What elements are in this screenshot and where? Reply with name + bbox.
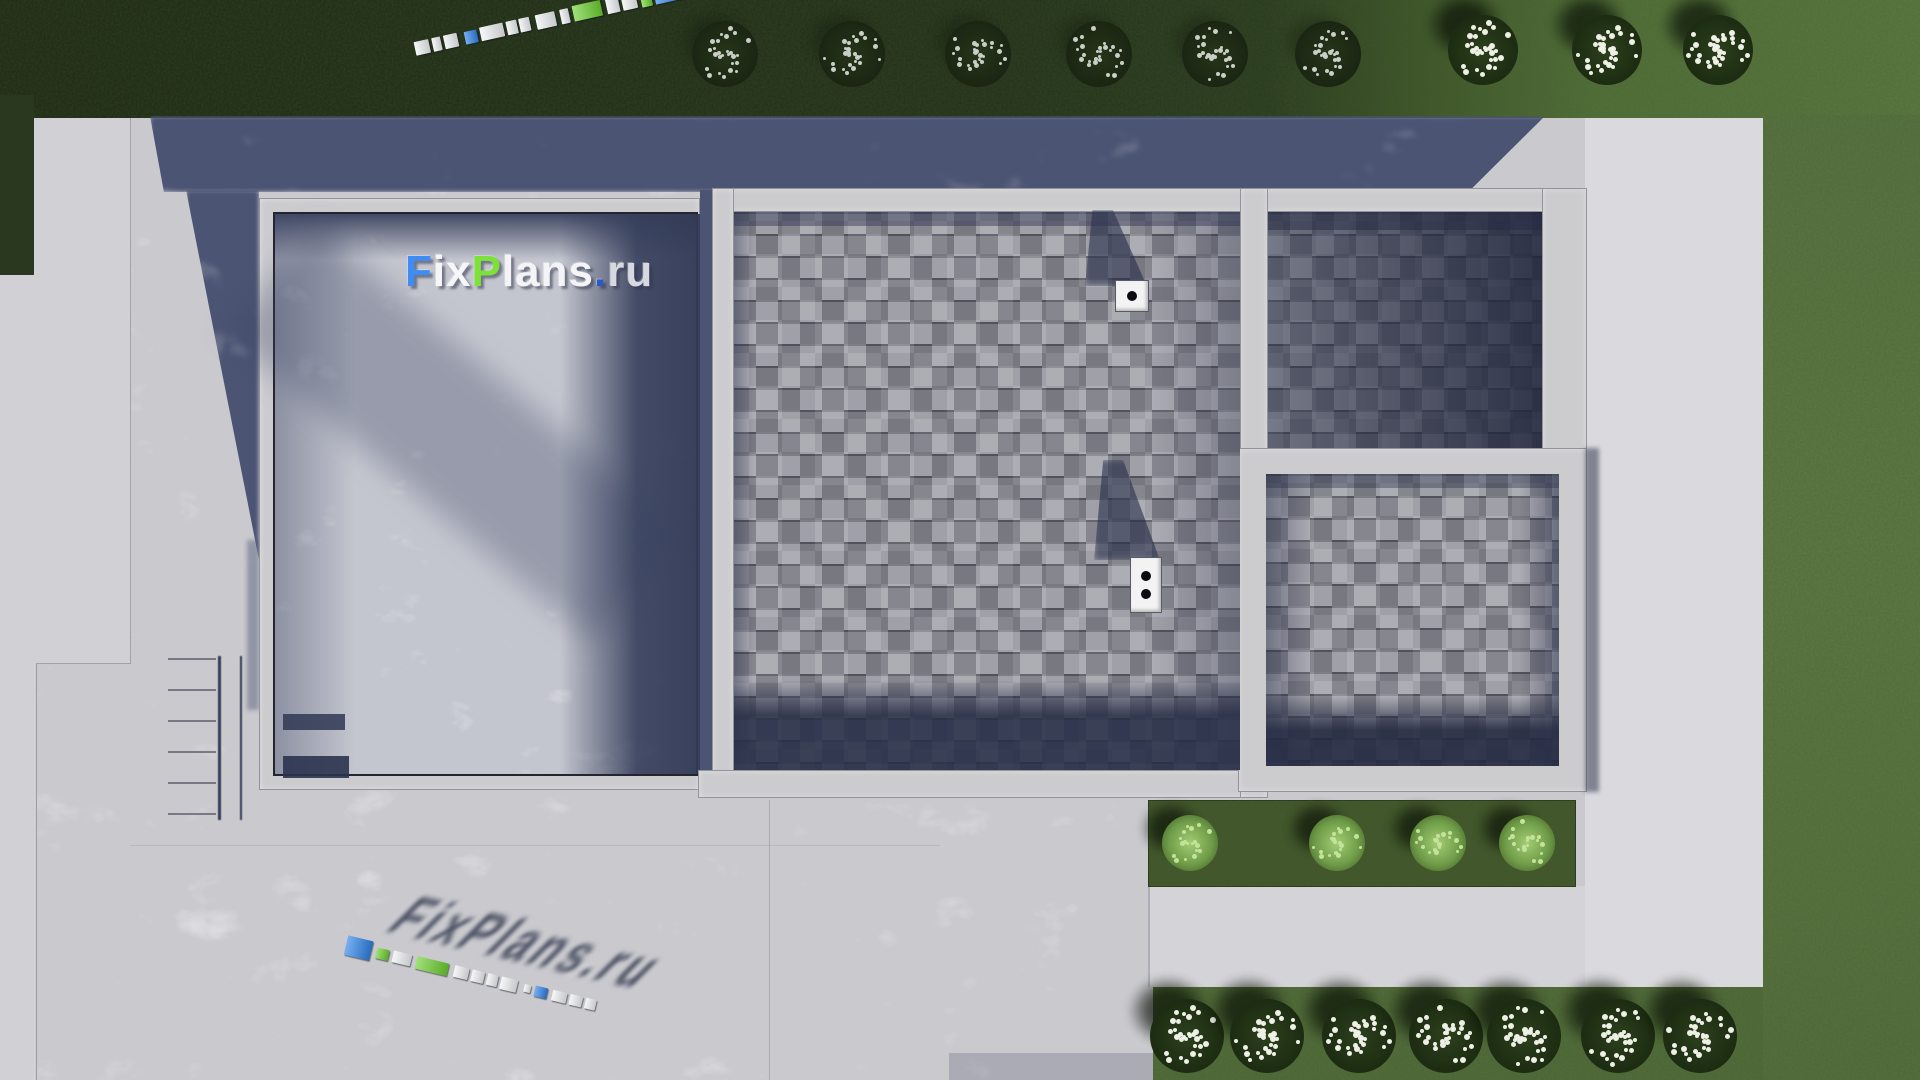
foliage-speck — [1256, 1019, 1262, 1025]
logo-letter-top — [391, 950, 412, 966]
foliage-speck — [1451, 1023, 1455, 1027]
foliage-speck — [1337, 827, 1340, 830]
gap-shadow-right-edge — [1585, 448, 1599, 792]
foliage-speck — [1636, 1016, 1640, 1020]
foliage-speck — [1197, 823, 1201, 827]
foliage-speck — [1332, 1027, 1338, 1033]
foliage-speck — [1712, 46, 1718, 52]
foliage-speck — [831, 62, 835, 66]
foliage-speck — [1706, 1047, 1711, 1052]
foliage-speck — [1333, 840, 1337, 844]
foliage-speck — [1248, 1058, 1252, 1062]
shrub-foliage — [1066, 21, 1132, 87]
foliage-speck — [1457, 1031, 1461, 1035]
shrub-leaf — [1309, 815, 1365, 871]
foliage-speck — [1205, 56, 1208, 59]
foliage-speck — [1325, 69, 1329, 73]
foliage-speck — [1719, 1023, 1723, 1027]
logo-letter-top — [518, 17, 532, 33]
foliage-speck — [736, 54, 739, 57]
foliage-speck — [1111, 45, 1115, 49]
foliage-speck — [1693, 42, 1699, 48]
foliage-speck — [1179, 1056, 1183, 1060]
foliage-speck — [968, 67, 972, 71]
foliage-speck — [1186, 1014, 1192, 1020]
foliage-speck — [1454, 838, 1459, 843]
shrub-foliage — [1295, 21, 1361, 87]
foliage-speck — [1633, 1038, 1637, 1042]
shrub-flower-shade — [1295, 21, 1361, 87]
foliage-speck — [1076, 48, 1079, 51]
foliage-speck — [1526, 844, 1529, 847]
foliage-speck — [1695, 58, 1701, 64]
foliage-speck — [1618, 31, 1623, 36]
logo-letter-top — [499, 976, 519, 993]
shrub-flower-sun — [1230, 999, 1304, 1073]
logo-letter-top — [533, 985, 548, 999]
logo-letter-top — [479, 22, 505, 41]
entrance-stairs — [168, 658, 216, 820]
foliage-speck — [1696, 1018, 1701, 1023]
foliage-speck — [1170, 1018, 1176, 1024]
foliage-speck — [1329, 71, 1334, 76]
foliage-speck — [1701, 1033, 1705, 1037]
shrub-leaf — [1410, 815, 1466, 871]
foliage-speck — [1119, 49, 1122, 52]
foliage-speck — [1252, 1027, 1257, 1032]
foliage-speck — [1313, 50, 1318, 55]
foliage-speck — [1614, 51, 1618, 55]
foliage-speck — [1227, 56, 1232, 61]
foliage-speck — [1275, 1010, 1281, 1016]
foliage-speck — [1705, 1039, 1711, 1045]
apron-seam-vertical — [769, 800, 770, 1080]
logo-letter-top — [568, 993, 583, 1007]
foliage-speck — [1708, 42, 1713, 47]
foliage-speck — [1362, 1019, 1366, 1023]
foliage-speck — [1213, 29, 1218, 34]
foliage-speck — [1613, 1035, 1619, 1041]
foliage-speck — [1290, 1024, 1296, 1030]
foliage-speck — [1088, 60, 1091, 63]
foliage-speck — [1319, 850, 1323, 854]
foliage-speck — [733, 31, 737, 35]
foliage-speck — [1585, 58, 1590, 63]
foliage-speck — [1166, 1057, 1172, 1063]
foliage-speck — [718, 55, 722, 59]
foliage-speck — [1498, 55, 1504, 61]
foliage-speck — [1291, 1018, 1295, 1022]
foliage-speck — [1704, 1012, 1708, 1016]
shrub-flower-sun — [1487, 999, 1561, 1073]
logo-letter-top — [523, 984, 532, 993]
logo-letter-top — [413, 39, 431, 56]
foliage-speck — [1531, 1057, 1537, 1063]
foliage-speck — [1359, 846, 1362, 849]
building-shadow-left — [186, 190, 259, 560]
logo-letter-top — [639, 0, 653, 7]
foliage-speck — [1512, 842, 1516, 846]
foliage-speck — [1505, 32, 1511, 38]
foliage-speck — [1589, 1049, 1594, 1054]
foliage-speck — [1349, 1027, 1354, 1032]
foliage-speck — [1338, 65, 1342, 69]
foliage-speck — [1337, 1039, 1342, 1044]
foliage-speck — [1686, 53, 1691, 58]
foliage-speck — [1328, 854, 1331, 857]
logo-letter-top — [584, 997, 597, 1010]
logo-letter-top — [534, 11, 557, 30]
foliage-speck — [1522, 1027, 1528, 1033]
glass-shade-left — [275, 214, 355, 774]
foliage-speck — [1596, 34, 1602, 40]
slab-edge-band — [949, 1053, 1176, 1080]
foliage-speck — [1536, 839, 1539, 842]
foliage-speck — [1536, 1049, 1540, 1053]
foliage-speck — [1079, 57, 1084, 62]
foliage-speck — [1339, 848, 1342, 851]
foliage-speck — [1460, 1057, 1466, 1063]
foliage-speck — [1615, 25, 1621, 31]
foliage-speck — [1690, 47, 1694, 51]
foliage-speck — [1443, 1031, 1447, 1035]
foliage-speck — [1540, 1010, 1544, 1014]
foliage-speck — [1164, 1051, 1169, 1056]
shrub-foliage — [1410, 815, 1466, 871]
foliage-speck — [1441, 832, 1446, 837]
shrub-flower-sun — [1322, 999, 1396, 1073]
foliage-speck — [1540, 852, 1543, 855]
foliage-speck — [1073, 37, 1078, 42]
foliage-speck — [713, 47, 716, 50]
shrub-flower-shade — [1066, 21, 1132, 87]
foliage-speck — [1624, 1048, 1628, 1052]
foliage-speck — [1098, 58, 1102, 62]
foliage-speck — [859, 55, 862, 58]
foliage-speck — [1461, 64, 1466, 69]
foliage-speck — [1184, 1059, 1189, 1064]
foliage-speck — [1445, 1040, 1450, 1045]
foliage-speck — [720, 33, 723, 36]
watermark-segment: F — [405, 247, 433, 296]
foliage-speck — [1103, 45, 1108, 50]
foliage-speck — [1172, 854, 1176, 858]
foliage-speck — [1473, 34, 1478, 39]
watermark-fixplans: FixPlans.ru — [405, 250, 653, 294]
foliage-speck — [1613, 57, 1618, 62]
foliage-speck — [1168, 1029, 1173, 1034]
foliage-speck — [1229, 31, 1232, 34]
foliage-speck — [1201, 42, 1206, 47]
foliage-speck — [1190, 1005, 1196, 1011]
foliage-speck — [981, 39, 984, 42]
apron-seam-horizontal — [130, 845, 940, 846]
foliage-speck — [1475, 68, 1479, 72]
pavilion-glass-roof: FixPlans.ru — [273, 212, 698, 776]
foliage-speck — [1671, 1049, 1677, 1055]
foliage-speck — [1508, 1023, 1514, 1029]
foliage-speck — [1115, 65, 1118, 68]
logo-letter-top — [551, 989, 568, 1003]
foliage-speck — [1740, 58, 1744, 62]
foliage-speck — [1418, 836, 1423, 841]
foliage-speck — [1601, 1032, 1607, 1038]
foliage-speck — [1681, 1046, 1687, 1052]
foliage-speck — [1707, 64, 1712, 69]
foliage-speck — [1244, 1051, 1250, 1057]
foliage-speck — [958, 57, 962, 61]
foliage-speck — [1731, 41, 1735, 45]
foliage-speck — [1346, 827, 1350, 831]
logo-letter-top — [443, 33, 460, 50]
foliage-speck — [722, 75, 726, 79]
shrub-leaf — [1499, 815, 1555, 871]
foliage-speck — [1602, 1014, 1608, 1020]
shrub-flower-shade — [945, 21, 1011, 87]
foliage-speck — [1112, 73, 1117, 78]
foliage-speck — [1382, 1045, 1386, 1049]
foliage-speck — [858, 61, 862, 65]
foliage-speck — [724, 34, 729, 39]
foliage-speck — [1198, 849, 1202, 853]
foliage-speck — [1690, 1015, 1696, 1021]
foliage-speck — [1672, 1043, 1677, 1048]
foliage-speck — [1599, 68, 1604, 73]
foliage-speck — [1192, 854, 1197, 859]
foliage-speck — [1629, 1048, 1634, 1053]
logo-letter-top — [620, 0, 638, 11]
foliage-speck — [1327, 30, 1330, 33]
foliage-speck — [1610, 1062, 1615, 1067]
foliage-speck — [1529, 1027, 1533, 1031]
foliage-speck — [1318, 43, 1323, 48]
foliage-speck — [1417, 1017, 1423, 1023]
foliage-speck — [1231, 64, 1235, 68]
foliage-speck — [1687, 1057, 1692, 1062]
foliage-speck — [1319, 854, 1324, 859]
foliage-speck — [1312, 846, 1315, 849]
foliage-speck — [1465, 43, 1470, 48]
foliage-speck — [1220, 46, 1223, 49]
foliage-speck — [1174, 858, 1179, 863]
foliage-speck — [708, 48, 712, 52]
foliage-speck — [1540, 1058, 1544, 1062]
foliage-speck — [1467, 33, 1473, 39]
foliage-speck — [1272, 1052, 1276, 1056]
foliage-speck — [1516, 1062, 1520, 1066]
foliage-speck — [1182, 830, 1186, 834]
foliage-speck — [1601, 49, 1606, 54]
foliage-speck — [1468, 1031, 1472, 1035]
vent-hole — [1127, 291, 1137, 301]
foliage-speck — [1509, 1014, 1514, 1019]
foliage-speck — [842, 68, 845, 71]
foliage-speck — [1106, 73, 1110, 77]
foliage-speck — [1195, 35, 1200, 40]
foliage-speck — [1180, 841, 1185, 846]
garden-path — [1148, 886, 1585, 987]
foliage-speck — [1741, 39, 1745, 43]
foliage-speck — [1213, 55, 1217, 59]
foliage-speck — [1522, 847, 1527, 852]
logo-letter-top — [486, 973, 499, 987]
foliage-speck — [1279, 1016, 1284, 1021]
foliage-speck — [1331, 32, 1336, 37]
foliage-speck — [1684, 1052, 1688, 1056]
shrub-foliage — [692, 21, 758, 87]
foliage-speck — [1203, 1041, 1209, 1047]
foliage-speck — [1436, 834, 1440, 838]
foliage-speck — [990, 41, 994, 45]
foliage-speck — [1184, 858, 1187, 861]
foliage-speck — [1522, 1037, 1527, 1042]
foliage-speck — [716, 39, 720, 43]
shrub-foliage — [1182, 21, 1248, 87]
foliage-speck — [1502, 1015, 1508, 1021]
roof-parapet-left — [712, 188, 734, 798]
roof-parapet-right-upper — [1542, 188, 1587, 472]
foliage-speck — [1334, 65, 1337, 68]
foliage-speck — [1197, 45, 1200, 48]
foliage-speck — [1437, 842, 1442, 847]
foliage-speck — [1614, 1018, 1618, 1022]
foliage-speck — [957, 62, 962, 67]
watermark-segment: . — [594, 247, 607, 296]
foliage-speck — [731, 62, 734, 65]
roof-shingles-lower-right — [1266, 474, 1559, 766]
foliage-speck — [1314, 44, 1317, 47]
foliage-speck — [1275, 1037, 1279, 1041]
foliage-speck — [728, 26, 733, 31]
foliage-speck — [729, 51, 733, 55]
foliage-speck — [1463, 69, 1469, 75]
roof-vent-chimney — [1131, 558, 1161, 612]
foliage-speck — [1331, 49, 1334, 52]
logo-letter-top — [559, 7, 571, 24]
foliage-speck — [1600, 1051, 1606, 1057]
foliage-speck — [1261, 1035, 1266, 1040]
foliage-speck — [1186, 842, 1189, 845]
foliage-speck — [1363, 1037, 1367, 1041]
foliage-speck — [1109, 49, 1112, 52]
foliage-speck — [847, 41, 851, 45]
foliage-speck — [1338, 841, 1342, 845]
foliage-speck — [735, 70, 738, 73]
foliage-speck — [710, 39, 715, 44]
foliage-speck — [1359, 1050, 1363, 1054]
foliage-speck — [953, 37, 957, 41]
foliage-speck — [1437, 1005, 1443, 1011]
foliage-speck — [847, 53, 851, 57]
shrub-flower-shade — [819, 21, 885, 87]
foliage-speck — [1420, 1029, 1424, 1033]
glass-shade-right — [560, 214, 700, 774]
foliage-speck — [1415, 841, 1418, 844]
vent-hole — [1141, 571, 1151, 581]
roof-parapet-bottom — [698, 770, 1268, 798]
logo-letter-top — [344, 935, 374, 961]
foliage-speck — [1696, 1052, 1702, 1058]
foliage-speck — [728, 68, 733, 73]
foliage-speck — [1428, 851, 1431, 854]
foliage-speck — [1099, 50, 1102, 53]
foliage-speck — [1329, 1033, 1333, 1037]
foliage-speck — [1516, 1006, 1520, 1010]
site-plan-render: FixPlans.ru FixPlans.ru — [0, 0, 1920, 1080]
shrub-foliage — [1572, 15, 1642, 85]
foliage-speck — [1463, 1047, 1467, 1051]
foliage-speck — [1421, 845, 1425, 849]
foliage-speck — [1471, 25, 1476, 30]
foliage-speck — [1520, 819, 1525, 824]
logo-letter-top — [605, 0, 621, 14]
foliage-speck — [718, 72, 721, 75]
watermark-segment: P — [472, 247, 502, 296]
foliage-speck — [1353, 1032, 1359, 1038]
foliage-speck — [952, 52, 955, 55]
shrub-foliage — [819, 21, 885, 87]
foliage-speck — [1453, 1058, 1458, 1063]
foliage-speck — [1448, 831, 1452, 835]
roof-parapet-top — [712, 188, 1587, 212]
foliage-speck — [1416, 1033, 1421, 1038]
path-seam-vertical — [1148, 886, 1150, 987]
building-shadow-top — [150, 116, 1545, 192]
shrub-foliage — [1230, 999, 1304, 1073]
foliage-speck — [1503, 1025, 1507, 1029]
foliage-speck — [990, 46, 993, 49]
foliage-speck — [1629, 39, 1635, 45]
foliage-speck — [842, 39, 847, 44]
foliage-speck — [1511, 1042, 1516, 1047]
foliage-speck — [1434, 850, 1439, 855]
foliage-speck — [1489, 43, 1495, 49]
foliage-speck — [746, 38, 751, 43]
foliage-speck — [1593, 42, 1598, 47]
foliage-speck — [873, 44, 878, 49]
wall-edge-line — [240, 656, 242, 820]
roof-shingles-main — [734, 212, 1240, 770]
foliage-speck — [1691, 32, 1696, 37]
sunlit-concrete-right — [1585, 115, 1763, 987]
glass-mullion-band — [283, 714, 345, 730]
foliage-speck — [1000, 44, 1003, 47]
foliage-speck — [1208, 78, 1211, 81]
foliage-speck — [1606, 1023, 1612, 1029]
foliage-speck — [1316, 73, 1319, 76]
foliage-speck — [1609, 1015, 1614, 1020]
foliage-speck — [1256, 1051, 1260, 1055]
watermark-segment: lans — [502, 247, 594, 296]
foliage-speck — [854, 38, 859, 43]
foliage-speck — [1336, 57, 1341, 62]
foliage-speck — [1621, 1011, 1627, 1017]
foliage-speck — [1721, 36, 1727, 42]
foliage-speck — [1182, 1012, 1186, 1016]
foliage-speck — [1259, 1055, 1264, 1060]
foliage-speck — [1372, 1027, 1376, 1031]
foliage-speck — [1720, 56, 1725, 61]
shrub-flower-sun — [1448, 15, 1518, 85]
foliage-speck — [851, 66, 856, 71]
foliage-speck — [974, 63, 979, 68]
shrub-flower-sun — [1663, 999, 1737, 1073]
foliage-speck — [1504, 1035, 1510, 1041]
foliage-speck — [1347, 1051, 1352, 1056]
foliage-speck — [1482, 29, 1488, 35]
shrub-foliage — [945, 21, 1011, 87]
foliage-speck — [1176, 1019, 1181, 1024]
